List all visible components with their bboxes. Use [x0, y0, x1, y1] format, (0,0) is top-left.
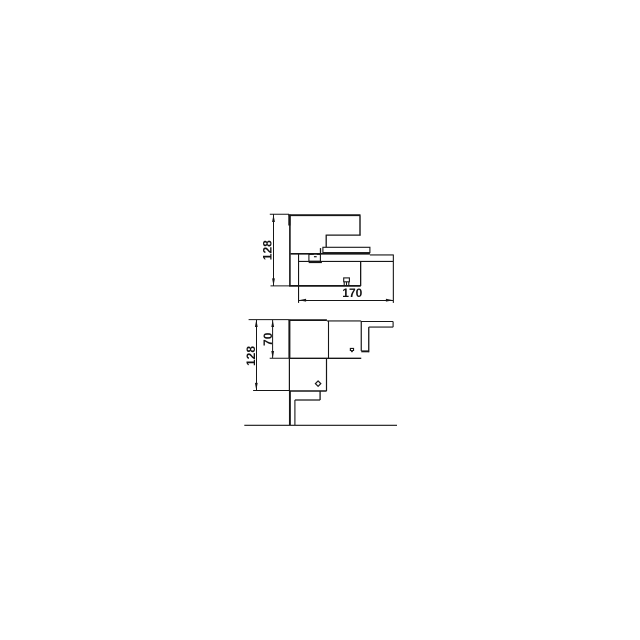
svg-text:128: 128: [244, 346, 258, 366]
svg-text:128: 128: [261, 240, 275, 260]
svg-text:170: 170: [342, 286, 362, 300]
svg-text:70: 70: [261, 332, 275, 346]
